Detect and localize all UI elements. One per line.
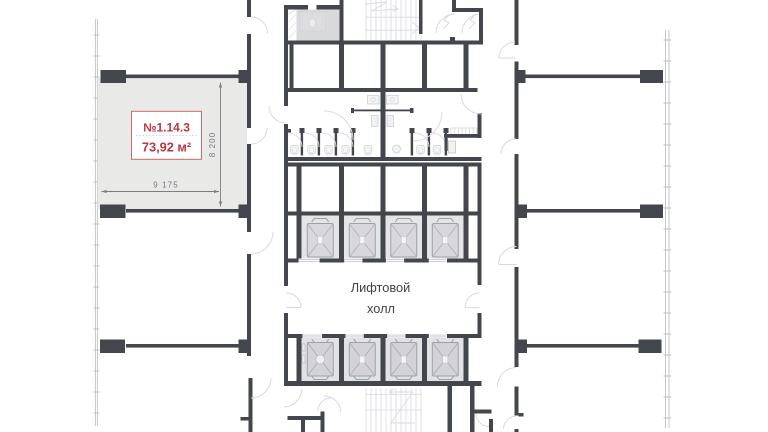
- svg-text:Лифтовой: Лифтовой: [351, 280, 411, 295]
- svg-text:73,92 м²: 73,92 м²: [142, 140, 191, 155]
- svg-text:холл: холл: [367, 301, 395, 316]
- svg-text:8 200: 8 200: [208, 132, 217, 158]
- svg-text:№1.14.3: №1.14.3: [143, 121, 190, 135]
- svg-text:9 175: 9 175: [153, 181, 179, 190]
